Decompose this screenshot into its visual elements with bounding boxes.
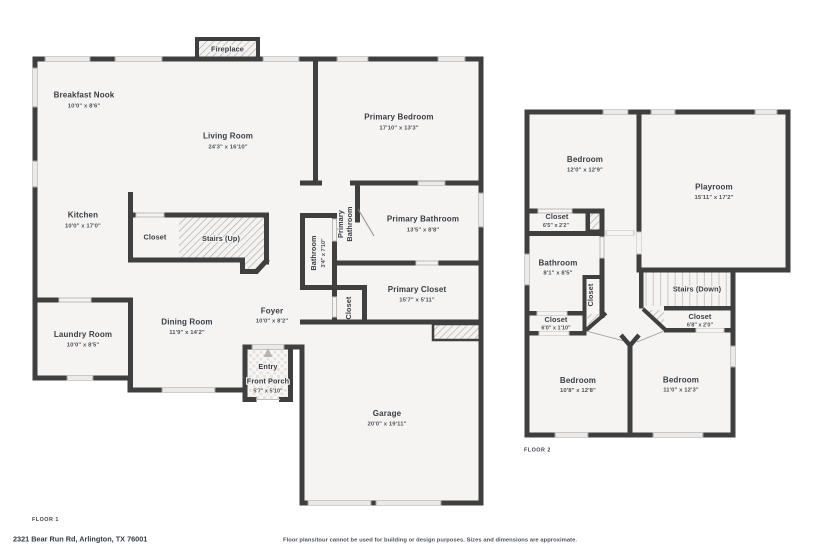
primary-bathroom-dims: 13'5" x 8'8" <box>407 228 440 234</box>
entry-label: Entry <box>258 362 278 371</box>
f2-closet-left-label: Closet <box>545 315 568 324</box>
primary-bathroom-hall-label-1: Primary <box>336 209 345 238</box>
f2-bathroom-dims: 8'1" x 8'5" <box>543 271 572 277</box>
floor-plan-page: Fireplace Breakfast Nook 10'0" x 8'6" Li… <box>0 0 825 549</box>
primary-bathroom-label: Primary Bathroom <box>387 215 459 224</box>
f2-bedroom-right-label: Bedroom <box>663 376 699 385</box>
primary-bedroom-label: Primary Bedroom <box>364 113 433 122</box>
dining-room-label: Dining Room <box>161 318 212 327</box>
f2-closet-chimney-dims: 6'5" x 2'2" <box>543 223 570 229</box>
kitchen-dims: 10'0" x 17'0" <box>65 224 101 230</box>
f2-closet-left-dims: 6'0" x 1'10" <box>541 326 571 332</box>
front-porch-label: Front Porch <box>247 377 289 386</box>
f2-bedroom-left-dims: 10'8" x 12'8" <box>560 388 596 394</box>
primary-bathroom-hall-label-2: Bathroom <box>345 206 354 242</box>
garage-dims: 20'0" x 19'11" <box>368 422 407 428</box>
floor1-label: FLOOR 1 <box>32 517 59 523</box>
breakfast-nook-label: Breakfast Nook <box>54 91 115 100</box>
f2-bedroom-top-label: Bedroom <box>567 155 603 164</box>
f2-bedroom-right-dims: 11'0" x 12'3" <box>663 388 699 394</box>
primary-closet-label: Primary Closet <box>388 285 447 294</box>
stairs-up-label: Stairs (Up) <box>202 234 240 243</box>
living-room-dims: 24'3" x 16'10" <box>208 145 247 151</box>
f2-playroom-dims: 15'11" x 17'2" <box>695 195 734 201</box>
f2-bathroom-label: Bathroom <box>539 259 578 268</box>
footer: FLOOR 1 FLOOR 2 2321 Bear Run Rd, Arling… <box>13 448 577 544</box>
dining-room-dims: 11'9" x 14'2" <box>169 330 205 336</box>
address-text: 2321 Bear Run Rd, Arlington, TX 76001 <box>13 535 147 544</box>
f2-playroom-label: Playroom <box>695 183 733 192</box>
kitchen-label: Kitchen <box>68 211 98 220</box>
f2-stairs-down-label: Stairs (Down) <box>673 285 722 294</box>
garage-overhang-hatch <box>433 324 480 340</box>
closet-label: Closet <box>144 233 167 242</box>
f2-closet-right-dims: 6'8" x 2'0" <box>687 323 714 329</box>
foyer-closet-label: Closet <box>344 296 353 319</box>
floor-plan-drawing: Fireplace Breakfast Nook 10'0" x 8'6" Li… <box>0 0 825 549</box>
fireplace-label: Fireplace <box>211 45 244 54</box>
f2-bedroom-left-label: Bedroom <box>560 376 596 385</box>
front-porch-dims: 5'7" x 5'10" <box>253 389 283 395</box>
garage-label: Garage <box>373 409 402 418</box>
primary-closet-dims: 15'7" x 5'11" <box>399 298 435 304</box>
f2-closet-chimney-label: Closet <box>546 212 569 221</box>
living-room-label: Living Room <box>203 132 253 141</box>
primary-bedroom-dims: 17'10" x 13'3" <box>379 126 418 132</box>
f2-bedroom-top-dims: 12'0" x 12'9" <box>567 168 603 174</box>
laundry-room-label: Laundry Room <box>54 330 112 339</box>
bathroom-dims: 3'4" x 7'10" <box>321 238 327 268</box>
foyer-dims: 10'0" x 8'2" <box>256 319 289 325</box>
disclaimer-text: Floor plans/tour cannot be used for buil… <box>283 538 577 544</box>
f2-closet-right-label: Closet <box>689 312 712 321</box>
floor2-label: FLOOR 2 <box>524 448 551 454</box>
foyer-label: Foyer <box>261 307 284 316</box>
f2-closet-hall-label: Closet <box>586 283 595 306</box>
bathroom-label: Bathroom <box>309 235 318 271</box>
laundry-room-dims: 10'0" x 8'5" <box>67 343 100 349</box>
breakfast-nook-dims: 10'0" x 8'6" <box>68 104 101 110</box>
